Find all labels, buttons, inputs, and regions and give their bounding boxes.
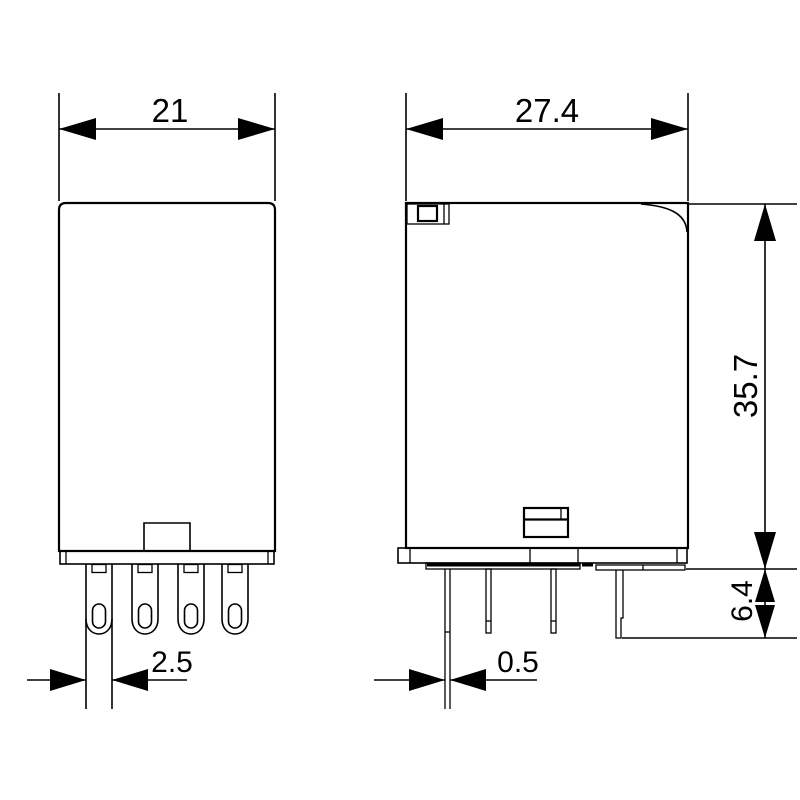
pin-slot-hole <box>93 604 106 628</box>
arrowhead-left-icon <box>450 669 486 691</box>
arrowhead-right-icon <box>50 669 86 691</box>
mounting-clip-detail <box>407 204 449 224</box>
side-pin-3 <box>551 569 556 633</box>
drawing-canvas: 21 <box>0 0 800 800</box>
side-pin-1 <box>445 569 450 709</box>
dim-label-side-width: 27.4 <box>515 92 579 129</box>
pin-slot-hole <box>229 604 242 628</box>
arrowhead-right-icon <box>238 118 275 140</box>
latch-detail <box>524 508 568 537</box>
front-width-dimension: 21 <box>59 92 275 201</box>
front-pin-4 <box>222 564 248 634</box>
front-pins <box>86 564 248 709</box>
pin-slot-hole <box>139 604 152 628</box>
pin-top-notch <box>184 565 198 573</box>
dim-label-front-width: 21 <box>152 92 189 129</box>
front-base-flange <box>60 551 274 564</box>
front-view: 21 <box>27 92 275 709</box>
pin-outline <box>616 570 623 638</box>
side-height-dimension: 35.7 <box>686 204 797 569</box>
dim-label-side-height: 35.7 <box>727 354 764 418</box>
arrowhead-left-icon <box>59 118 96 140</box>
pin-outline <box>132 564 158 634</box>
side-body-outline <box>406 203 688 548</box>
front-bottom-notch <box>144 523 190 551</box>
pin-slot-hole <box>185 604 198 628</box>
pin-top-notch <box>92 565 106 573</box>
pin-end-contour <box>86 619 112 634</box>
arrowhead-left-icon <box>112 669 148 691</box>
side-body <box>398 203 688 570</box>
top-right-fillet <box>641 204 687 232</box>
arrowhead-right-icon <box>651 118 688 140</box>
front-pin-1 <box>86 564 112 709</box>
dim-label-pin-width: 2.5 <box>151 646 193 679</box>
pin-length-dimension: 6.4 <box>622 569 797 638</box>
side-width-dimension: 27.4 <box>406 92 688 201</box>
pin-outline <box>178 564 204 634</box>
side-pin-4 <box>616 570 623 638</box>
pin-outline <box>222 564 248 634</box>
arrowhead-up-icon <box>754 204 776 241</box>
dim-label-pin-thickness: 0.5 <box>497 646 539 679</box>
arrowhead-left-icon <box>406 118 443 140</box>
pin-thickness-dimension: 0.5 <box>374 646 539 691</box>
front-body-outline <box>59 203 275 551</box>
front-pin-width-dimension: 2.5 <box>27 646 193 691</box>
side-base-flange <box>398 548 687 563</box>
arrowhead-down-icon <box>754 532 776 569</box>
flange-outline <box>398 548 687 563</box>
base-plate-right <box>596 565 685 570</box>
pin-top-notch <box>228 565 242 573</box>
side-pin-2 <box>486 569 491 633</box>
arrowhead-right-icon <box>409 669 445 691</box>
front-pin-2 <box>132 564 158 634</box>
pin-outline <box>486 569 491 633</box>
pin-outline <box>551 569 556 633</box>
clip-inner-box <box>418 206 437 221</box>
side-view: 27.4 <box>374 92 797 709</box>
front-body <box>59 203 275 564</box>
pin-top-notch <box>138 565 152 573</box>
dim-label-pin-length: 6.4 <box>726 580 759 622</box>
side-pins <box>445 569 623 709</box>
relay-dimension-drawing: 21 <box>0 0 800 800</box>
front-pin-3 <box>178 564 204 634</box>
